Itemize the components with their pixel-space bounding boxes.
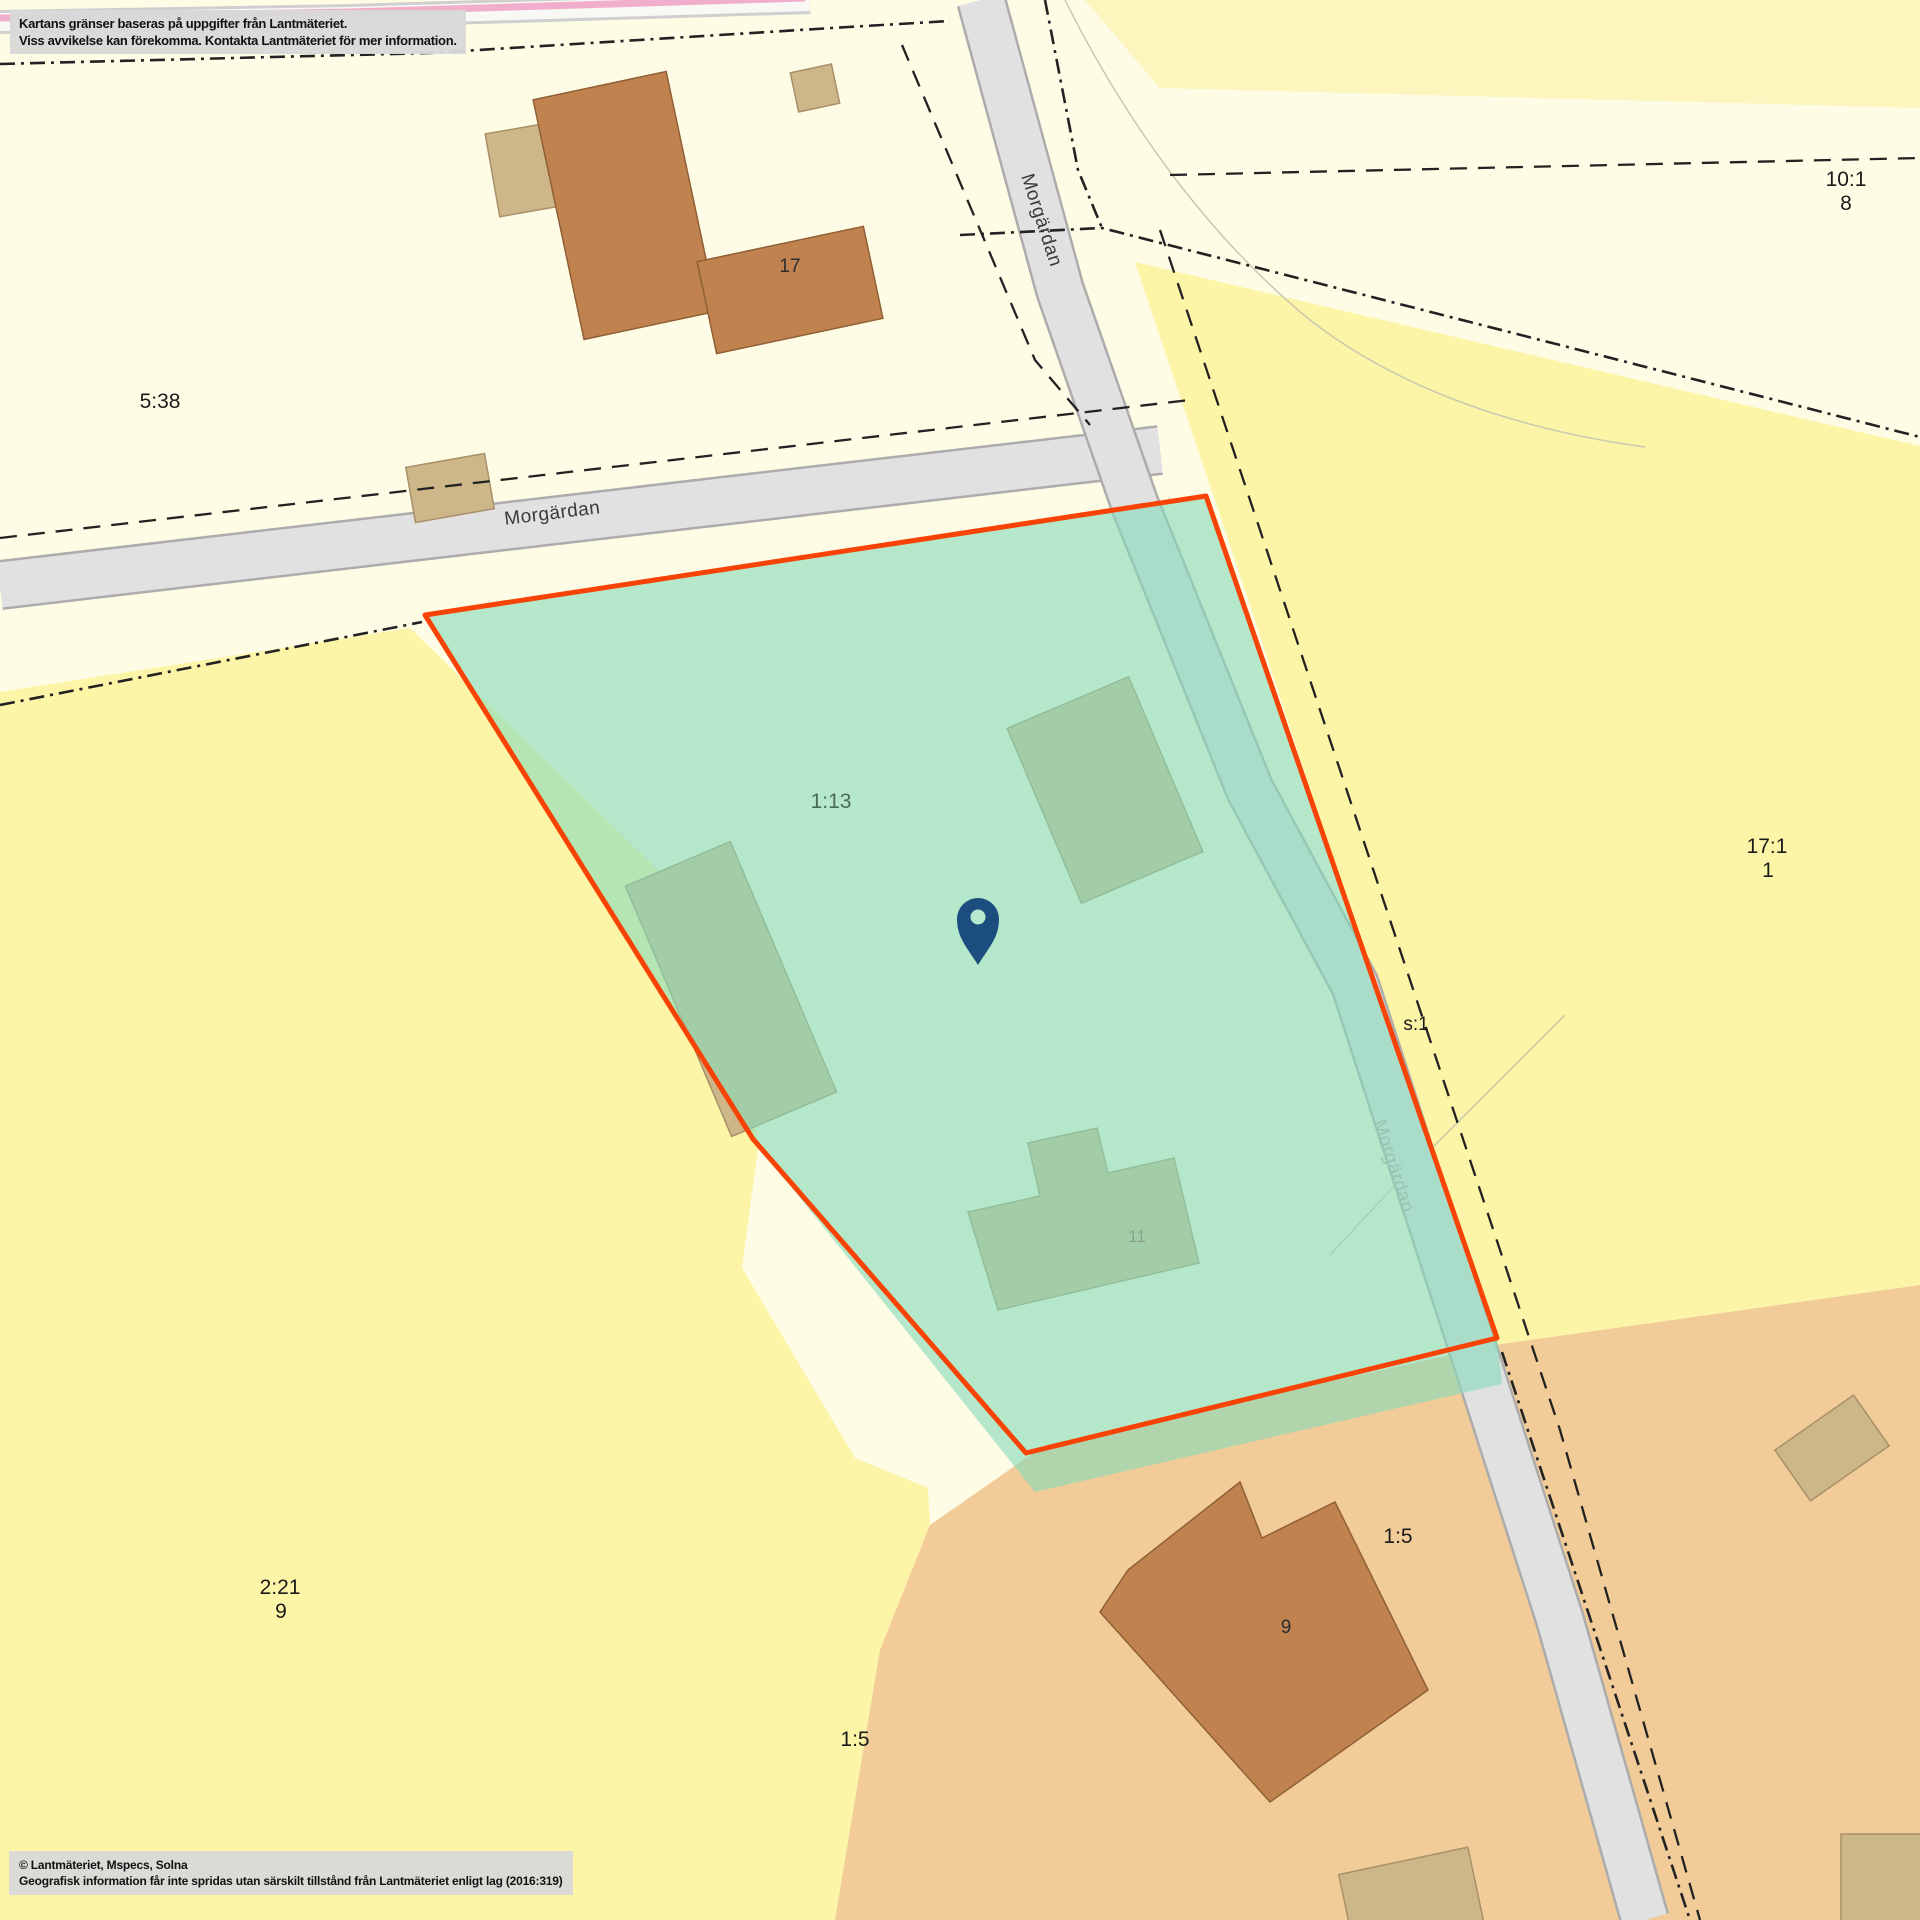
map-attribution: © Lantmäteriet, Mspecs, Solna Geografisk… xyxy=(9,1851,573,1895)
parcel-label-s-1: s:1 xyxy=(1403,1014,1428,1035)
parcel-label-5-38: 5:38 xyxy=(140,390,181,413)
building-label-9: 9 xyxy=(1281,1617,1292,1638)
building-label-17: 17 xyxy=(779,256,800,277)
parcel-sublabel-17-1: 1 xyxy=(1762,859,1774,882)
parcel-label-17-1: 17:1 xyxy=(1747,835,1788,858)
map-pin-hole xyxy=(971,910,986,925)
parcel-label-2-21: 2:21 xyxy=(260,1576,301,1599)
disclaimer-line-2: Viss avvikelse kan förekomma. Kontakta L… xyxy=(19,32,457,49)
parcel-label-1-5-south: 1:5 xyxy=(840,1728,869,1751)
map-canvas[interactable]: 5:38 17 10:1 8 17:1 1 s:1 1:13 11 9 1:5 … xyxy=(0,0,1920,1920)
copyright-line-1: © Lantmäteriet, Mspecs, Solna xyxy=(19,1857,563,1873)
parcel-sublabel-2-21: 9 xyxy=(275,1600,287,1623)
parcel-label-1-5-east: 1:5 xyxy=(1383,1525,1412,1548)
copyright-line-2: Geografisk information får inte spridas … xyxy=(19,1873,563,1889)
parcel-label-10-1: 10:1 xyxy=(1826,168,1867,191)
map-viewport[interactable]: { "attribution": { "disclaimer_line1": "… xyxy=(0,0,1920,1920)
map-disclaimer: Kartans gränser baseras på uppgifter frå… xyxy=(10,10,466,54)
outbuilding xyxy=(1841,1834,1920,1920)
disclaimer-line-1: Kartans gränser baseras på uppgifter frå… xyxy=(19,15,457,32)
outbuilding xyxy=(790,64,839,112)
parcel-label-1-13: 1:13 xyxy=(811,790,852,813)
parcel-sublabel-10-1: 8 xyxy=(1840,192,1852,215)
building-label-11: 11 xyxy=(1128,1227,1146,1246)
